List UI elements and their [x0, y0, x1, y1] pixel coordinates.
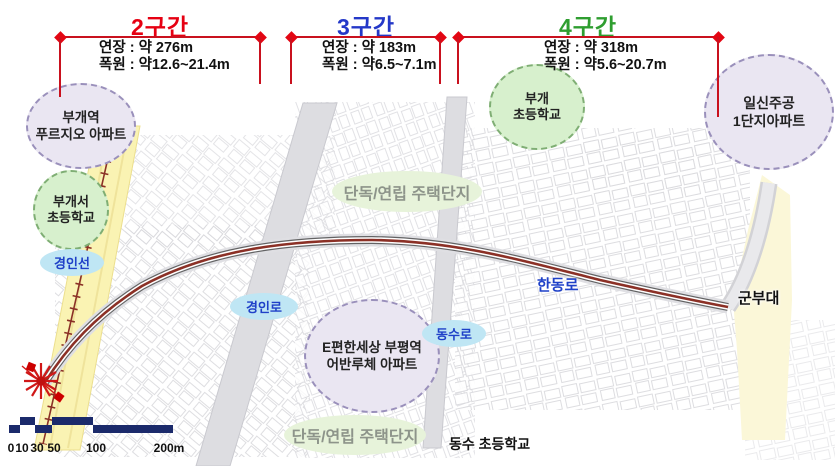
- section3-line: [291, 36, 440, 38]
- section3-width: 폭원 : 약6.5~7.1m: [322, 57, 437, 74]
- landmark-ilsin-jugong-apartment: 일신주공 1단지아파트: [704, 54, 834, 170]
- landmark-epyeonhansesang-apartment: E편한세상 부평역 어반루체 아파트: [304, 299, 440, 413]
- landmark-label: 초등학교: [513, 107, 561, 123]
- section3-length: 연장 : 약 183m: [322, 40, 437, 57]
- section2-boundary-left: [59, 37, 61, 97]
- area-housing-bottom: 단독/연립 주택단지: [284, 415, 426, 455]
- section4-width: 폭원 : 약5.6~20.7m: [544, 57, 667, 74]
- section3-boundary-right: [439, 37, 441, 84]
- road-label-dongsu-ro: 동수로: [422, 320, 486, 347]
- section4-line: [458, 36, 718, 38]
- landmark-label: 어반루체 아파트: [327, 356, 418, 373]
- road-label: 경인로: [246, 297, 282, 316]
- landmark-label: 1단지아파트: [733, 112, 805, 130]
- area-label: 단독/연립 주택단지: [292, 423, 419, 447]
- landmark-label: 부개: [525, 91, 549, 107]
- section4-boundary-right: [717, 37, 719, 117]
- landmark-label: E편한세상 부평역: [322, 339, 422, 356]
- landmark-bugaeseo-elementary: 부개서 초등학교: [33, 170, 109, 250]
- scale-tick: 100: [86, 441, 106, 455]
- section4-boundary-left: [457, 37, 459, 84]
- scale-segment: [9, 425, 20, 433]
- landmark-label: 초등학교: [47, 210, 95, 226]
- landmark-label: 푸르지오 아파트: [36, 126, 127, 143]
- area-housing-top: 단독/연립 주택단지: [332, 171, 482, 212]
- section4-info: 연장 : 약 318m 폭원 : 약5.6~20.7m: [544, 40, 667, 74]
- scale-tick: 10: [15, 441, 28, 455]
- road-label: 동수로: [436, 324, 472, 343]
- landmark-bugae-station-apartment: 부개역 푸르지오 아파트: [26, 83, 136, 169]
- scale-tick: 200m: [154, 441, 185, 455]
- scale-tick: 30: [30, 441, 43, 455]
- section2-length: 연장 : 약 276m: [99, 40, 230, 57]
- section3-boundary-left: [290, 37, 292, 84]
- section2-info: 연장 : 약 276m 폭원 : 약12.6~21.4m: [99, 40, 230, 74]
- scale-bar: 0 10 30 50 100 200m: [6, 414, 186, 460]
- section4-length: 연장 : 약 318m: [544, 40, 667, 57]
- road-label-gyeongin-line: 경인선: [40, 249, 104, 276]
- landmark-label: 일신주공: [743, 94, 795, 112]
- road-label-handong-ro: 한동로: [537, 274, 578, 295]
- landmark-bugae-elementary: 부개 초등학교: [489, 64, 585, 150]
- roadmap-figure: 부개역 푸르지오 아파트 부개서 초등학교 부개 초등학교 일신주공 1단지아파…: [0, 0, 835, 466]
- section3-info: 연장 : 약 183m 폭원 : 약6.5~7.1m: [322, 40, 437, 74]
- scale-tick: 50: [47, 441, 60, 455]
- scale-segment: [20, 417, 35, 425]
- scale-tick: 0: [8, 441, 15, 455]
- scale-segment: [35, 425, 52, 433]
- area-label: 단독/연립 주택단지: [344, 180, 471, 204]
- road-label: 경인선: [54, 253, 90, 272]
- section2-boundary-right: [259, 37, 261, 84]
- area-dongsu-elementary: 동수 초등학교: [449, 434, 530, 454]
- road-label-gyeongin-ro: 경인로: [230, 293, 298, 320]
- scale-segment: [93, 425, 173, 433]
- landmark-label: 부개서: [53, 194, 89, 210]
- section2-line: [60, 36, 260, 38]
- landmark-label: 부개역: [62, 109, 99, 126]
- scale-segment: [52, 417, 93, 425]
- area-military-base: 군부대: [738, 287, 779, 308]
- section2-width: 폭원 : 약12.6~21.4m: [99, 57, 230, 74]
